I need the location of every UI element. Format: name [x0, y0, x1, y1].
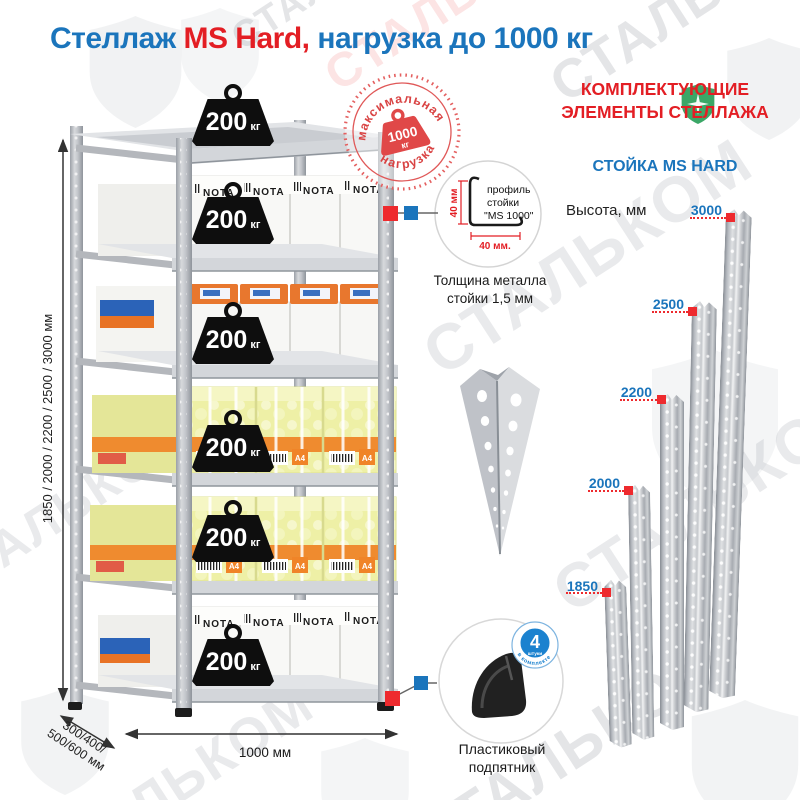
- components-header: КОМПЛЕКТУЮЩИЕ ЭЛЕМЕНТЫ СТЕЛЛАЖА: [535, 78, 795, 124]
- post-perspective-image: [452, 366, 552, 561]
- post-height-label: 2500: [638, 296, 684, 312]
- plastic-foot-caption: Пластиковый подпятник: [432, 740, 572, 776]
- rack-heights-label: 1850 / 2000 / 2200 / 2500 / 3000 мм: [41, 313, 56, 522]
- svg-text:4: 4: [530, 632, 540, 652]
- svg-text:NOTA: NOTA: [353, 616, 385, 627]
- svg-text:в комплекте: в комплекте: [516, 652, 553, 667]
- svg-text:NOTA: NOTA: [303, 186, 335, 197]
- shelf-load-weight-icon: 200кг: [192, 182, 274, 244]
- leader-line: [690, 217, 726, 219]
- profile-marker-red: [383, 206, 398, 221]
- svg-text:А4: А4: [362, 454, 373, 463]
- leader-line: [566, 592, 602, 594]
- post-height-label: 3000: [676, 202, 722, 218]
- post-marker: [602, 588, 611, 597]
- profile-marker-blue: [404, 206, 418, 220]
- post-height-label: 2000: [574, 475, 620, 491]
- infographic-canvas: СТАЛЬКОМ СТАЛЬКОМ СТАЛЬКОМ СТАЛЬКОМ СТАЛ…: [0, 0, 800, 800]
- foot-marker-red: [385, 691, 400, 706]
- svg-text:кг: кг: [400, 139, 410, 151]
- components-subtitle: СТОЙКА MS HARD: [535, 158, 795, 176]
- profile-thickness-caption: Толщина металла стойки 1,5 мм: [425, 272, 555, 307]
- post-2200: [660, 394, 684, 730]
- shelf-load-weight-icon: 200кг: [192, 500, 274, 562]
- shelf-load-weight-icon: 200кг: [192, 624, 274, 686]
- svg-text:стойки: стойки: [487, 197, 519, 209]
- post-2000: [628, 485, 654, 740]
- shelf-load-weight-icon: 200кг: [192, 410, 274, 472]
- svg-text:"MS 1000": "MS 1000": [484, 210, 534, 222]
- svg-text:40 мм: 40 мм: [449, 189, 460, 218]
- shelf-load-weight-icon: 200кг: [192, 302, 274, 364]
- title-suffix: нагрузка до 1000 кг: [309, 22, 592, 55]
- svg-text:NOTA: NOTA: [353, 185, 385, 196]
- foot-marker-blue: [414, 676, 428, 690]
- svg-text:штуки: штуки: [528, 652, 543, 657]
- leader-line: [652, 311, 688, 313]
- shield-watermark: [690, 700, 800, 800]
- leader-line: [620, 399, 657, 401]
- post-marker: [624, 486, 633, 495]
- svg-text:А4: А4: [229, 562, 240, 571]
- title-model: MS Hard,: [183, 22, 309, 55]
- svg-text:NOTA: NOTA: [303, 617, 335, 628]
- svg-text:40 мм.: 40 мм.: [479, 241, 511, 252]
- watermark-text: СТАЛЬКОМ: [0, 0, 73, 131]
- post-marker: [726, 213, 735, 222]
- svg-text:А4: А4: [295, 454, 306, 463]
- title-prefix: Стеллаж: [50, 22, 183, 55]
- post-marker: [688, 307, 697, 316]
- height-caption: Высота, мм: [566, 202, 646, 219]
- svg-text:А4: А4: [295, 562, 306, 571]
- shield-watermark: [320, 738, 410, 800]
- rack-width-label: 1000 мм: [210, 744, 320, 762]
- svg-text:профиль: профиль: [487, 184, 531, 196]
- post-height-label: 2200: [606, 384, 652, 400]
- watermark-text: СТАЛЬКОМ: [0, 405, 203, 615]
- page-title: Стеллаж MS Hard, нагрузка до 1000 кг: [50, 22, 593, 56]
- leader-line: [588, 490, 624, 492]
- post-marker: [657, 395, 666, 404]
- svg-text:А4: А4: [362, 562, 373, 571]
- shelf-load-weight-icon: 200кг: [192, 84, 274, 146]
- quantity-badge: в комплекте 4 штуки: [512, 622, 558, 668]
- svg-text:1000: 1000: [386, 124, 419, 146]
- svg-text:нагрузка: нагрузка: [376, 139, 442, 178]
